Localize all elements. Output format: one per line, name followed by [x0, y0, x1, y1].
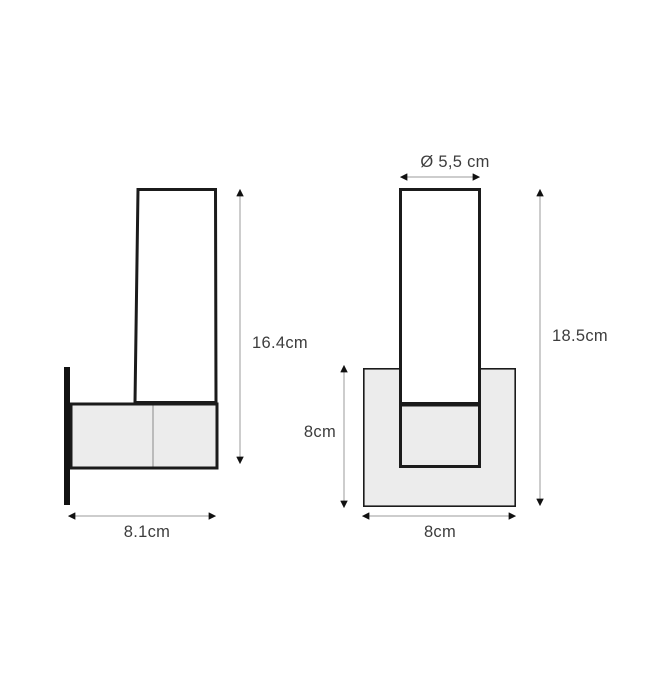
front-tube [401, 190, 480, 404]
diagram-canvas: 16.4cm 8.1cm Ø 5,5 cm 18.5cm 8cm 8cm [0, 0, 650, 677]
side-view [64, 190, 217, 506]
front-width-dim-label: 8cm [424, 523, 456, 541]
lamp-dimension-diagram: 16.4cm 8.1cm Ø 5,5 cm 18.5cm 8cm 8cm [0, 0, 650, 677]
front-diameter-dim-label: Ø 5,5 cm [420, 153, 489, 171]
side-wall-plate [64, 367, 70, 505]
front-bracket-height-dim-label: 8cm [304, 423, 336, 441]
front-total-height-dim-label: 18.5cm [552, 327, 608, 345]
side-width-dim-label: 8.1cm [124, 523, 170, 541]
side-bracket [71, 404, 217, 468]
side-shade [135, 190, 216, 403]
front-view [364, 190, 515, 507]
front-fitting [401, 405, 480, 467]
side-height-dim-label: 16.4cm [252, 334, 308, 352]
